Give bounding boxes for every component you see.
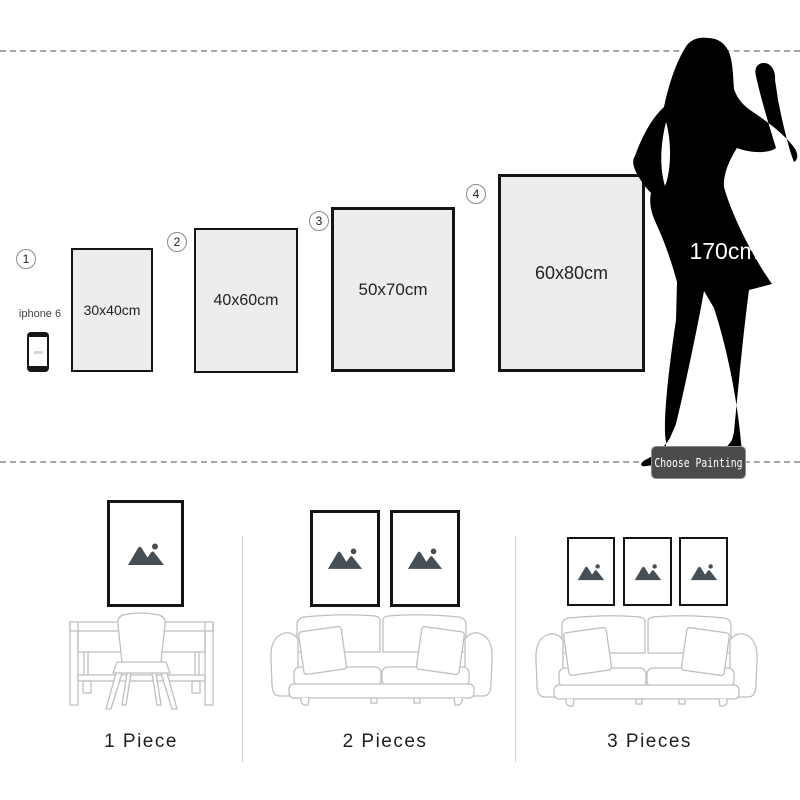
size-label-50x70: 50x70cm	[359, 280, 428, 300]
size-label-30x40: 30x40cm	[84, 302, 141, 318]
size-label-40x60: 40x60cm	[214, 292, 279, 310]
art-frame	[567, 537, 615, 606]
iphone-screen	[29, 337, 47, 366]
size-frame-30x40: 30x40cm	[71, 248, 153, 372]
image-placeholder-icon	[690, 563, 718, 581]
circled-number-1: 1	[16, 249, 36, 269]
art-frame	[107, 500, 184, 607]
choose-painting-button[interactable]: Choose Painting	[651, 446, 746, 479]
art-frame	[310, 510, 380, 607]
sofa-drawing	[533, 613, 760, 708]
desk-chair-drawing	[63, 612, 220, 712]
image-placeholder-icon	[577, 563, 605, 581]
number-4-text: 4	[473, 187, 480, 201]
size-frame-40x60: 40x60cm	[194, 228, 298, 373]
piece-label-3: 3 Pieces	[572, 731, 727, 753]
size-chart-image: 1 2 3 4 iphone 6 30x40cm 40x60cm 50x70cm…	[0, 0, 800, 800]
size-label-60x80: 60x80cm	[535, 263, 608, 284]
section-divider-1	[242, 536, 243, 762]
image-placeholder-icon	[634, 563, 662, 581]
circled-number-4: 4	[466, 184, 486, 204]
sofa-drawing	[268, 612, 495, 707]
art-frame	[390, 510, 460, 607]
image-placeholder-icon	[127, 542, 165, 566]
number-3-text: 3	[316, 214, 323, 228]
image-placeholder-icon	[327, 547, 363, 570]
iphone-label: iphone 6	[12, 308, 68, 320]
image-placeholder-icon	[407, 547, 443, 570]
circled-number-2: 2	[167, 232, 187, 252]
circled-number-3: 3	[309, 211, 329, 231]
number-1-text: 1	[23, 252, 30, 266]
art-frame	[679, 537, 728, 606]
number-2-text: 2	[174, 235, 181, 249]
piece-label-1: 1 Piece	[66, 731, 216, 753]
height-label: 170cm	[689, 238, 758, 264]
choose-painting-label: Choose Painting	[654, 455, 742, 470]
woman-silhouette: 170cm	[620, 30, 800, 470]
size-frame-50x70: 50x70cm	[331, 207, 455, 372]
section-divider-2	[515, 536, 516, 762]
iphone-screen-mark	[34, 351, 43, 354]
piece-label-2: 2 Pieces	[310, 731, 460, 753]
iphone-icon	[27, 332, 49, 372]
art-frame	[623, 537, 672, 606]
